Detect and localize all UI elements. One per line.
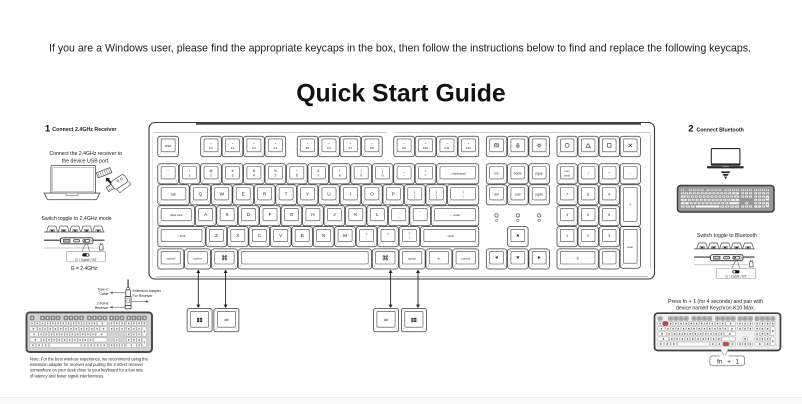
svg-text:Switch toggle to 2.4GHz mode: Switch toggle to 2.4GHz mode bbox=[42, 216, 112, 222]
svg-text:enter: enter bbox=[627, 245, 633, 249]
svg-text:Press fn + 1 (for 4 seconds) a: Press fn + 1 (for 4 seconds) and pair wi… bbox=[668, 299, 763, 305]
svg-text:fn: fn bbox=[438, 256, 441, 260]
svg-text:5: 5 bbox=[587, 213, 589, 217]
svg-text:8: 8 bbox=[339, 173, 341, 177]
svg-text:option: option bbox=[194, 256, 203, 260]
svg-text:extension adapter for receiver: extension adapter for receiver and putti… bbox=[30, 362, 144, 367]
svg-text:2: 2 bbox=[210, 173, 212, 177]
svg-text:F4: F4 bbox=[274, 146, 278, 150]
svg-text:control: control bbox=[461, 256, 470, 260]
svg-text:3: 3 bbox=[232, 173, 234, 177]
svg-text:F11: F11 bbox=[445, 146, 450, 150]
svg-text:,: , bbox=[366, 236, 367, 240]
svg-text:clear: clear bbox=[564, 173, 570, 177]
svg-text:1: 1 bbox=[189, 173, 191, 177]
svg-text:=: = bbox=[425, 173, 427, 177]
svg-text:pgdn: pgdn bbox=[536, 192, 543, 196]
svg-text:]: ] bbox=[436, 194, 437, 198]
svg-text:↑ shift: ↑ shift bbox=[446, 234, 454, 238]
svg-text:F9: F9 bbox=[402, 146, 406, 150]
svg-text:M: M bbox=[343, 233, 347, 238]
svg-text:4: 4 bbox=[566, 213, 568, 217]
svg-text:1: 1 bbox=[45, 124, 51, 135]
svg-text:0: 0 bbox=[382, 173, 384, 177]
svg-text:B: B bbox=[301, 233, 304, 238]
svg-text:G = 2.4GHz: G = 2.4GHz bbox=[71, 266, 98, 272]
svg-text:.: . bbox=[609, 256, 610, 260]
svg-text:control: control bbox=[166, 256, 175, 260]
svg-text:0: 0 bbox=[577, 256, 579, 260]
svg-text:/: / bbox=[409, 236, 410, 240]
svg-text:N: N bbox=[322, 233, 325, 238]
svg-text:device named Keychron K10 Max.: device named Keychron K10 Max. bbox=[676, 306, 755, 312]
svg-text:P: P bbox=[392, 191, 395, 196]
svg-text:F3: F3 bbox=[252, 146, 256, 150]
svg-text:F12: F12 bbox=[466, 146, 472, 150]
svg-text:F2: F2 bbox=[231, 146, 235, 150]
svg-text:/: / bbox=[588, 171, 589, 175]
svg-text:Z: Z bbox=[215, 233, 218, 238]
svg-text:Switch toggle to Bluetooth: Switch toggle to Bluetooth bbox=[697, 233, 757, 239]
svg-text:8: 8 bbox=[587, 192, 589, 196]
svg-text:For Receiver: For Receiver bbox=[133, 294, 154, 298]
svg-text:option: option bbox=[408, 256, 417, 260]
svg-text:the device USB port.: the device USB port. bbox=[62, 158, 110, 164]
svg-text:end: end bbox=[515, 192, 521, 196]
svg-text:ins: ins bbox=[494, 171, 498, 175]
svg-text:4: 4 bbox=[253, 173, 255, 177]
svg-text:-: - bbox=[404, 173, 405, 177]
svg-text:L: L bbox=[376, 212, 379, 217]
svg-text:somewhere on your desk close t: somewhere on your desk close to your key… bbox=[30, 368, 144, 373]
svg-text:Quick Start Guide: Quick Start Guide bbox=[296, 81, 505, 108]
svg-text:.: . bbox=[388, 236, 389, 240]
svg-text:+: + bbox=[629, 203, 631, 207]
svg-text:2: 2 bbox=[688, 124, 693, 135]
svg-text:1: 1 bbox=[735, 358, 739, 365]
svg-text:T: T bbox=[285, 191, 288, 196]
svg-text:[: [ bbox=[414, 194, 415, 198]
svg-text:+: + bbox=[727, 358, 731, 365]
svg-text:F: F bbox=[269, 212, 272, 217]
svg-text:Connect 2.4GHz Receiver: Connect 2.4GHz Receiver bbox=[52, 127, 116, 133]
svg-text:J: J bbox=[333, 212, 335, 217]
svg-text:`: ` bbox=[168, 173, 169, 177]
svg-text:Note: For the best wireless ex: Note: For the best wireless experience, … bbox=[30, 356, 149, 361]
svg-text:7: 7 bbox=[317, 173, 319, 177]
svg-text:Q: Q bbox=[198, 191, 202, 196]
svg-text:2.4GHz: 2.4GHz bbox=[97, 301, 109, 305]
svg-text:F8: F8 bbox=[370, 146, 374, 150]
svg-text:9: 9 bbox=[608, 192, 610, 196]
svg-text:↑ shift: ↑ shift bbox=[178, 234, 186, 238]
svg-text:F10: F10 bbox=[423, 146, 429, 150]
svg-text:G / Cable / BT: G / Cable / BT bbox=[75, 258, 96, 262]
svg-text:Extension Adapter: Extension Adapter bbox=[133, 289, 162, 293]
svg-text:fn: fn bbox=[717, 358, 723, 365]
svg-text:F6: F6 bbox=[327, 146, 331, 150]
svg-text:Connect Bluetooth: Connect Bluetooth bbox=[697, 127, 744, 133]
svg-text:6: 6 bbox=[608, 213, 610, 217]
svg-text:Connect the 2.4GHz receiver to: Connect the 2.4GHz receiver to bbox=[49, 151, 122, 157]
svg-text:6: 6 bbox=[296, 173, 298, 177]
svg-text:Cable: Cable bbox=[99, 292, 108, 296]
svg-text:5: 5 bbox=[274, 173, 276, 177]
svg-text:7: 7 bbox=[566, 192, 568, 196]
svg-text:3: 3 bbox=[608, 234, 610, 238]
svg-text:R: R bbox=[263, 191, 267, 196]
svg-text:tab: tab bbox=[171, 192, 176, 196]
svg-text:←backspace: ←backspace bbox=[450, 171, 467, 175]
svg-text:If you are a Windows user, ple: If you are a Windows user, please find t… bbox=[49, 43, 751, 55]
svg-text:Type-C: Type-C bbox=[97, 287, 109, 291]
svg-text:;: ; bbox=[398, 215, 399, 219]
svg-text:O: O bbox=[370, 191, 374, 196]
svg-text:of latency and fewer signal in: of latency and fewer signal interference… bbox=[30, 373, 104, 378]
svg-text:home: home bbox=[514, 171, 522, 175]
svg-text:del: del bbox=[494, 192, 499, 196]
svg-text:9: 9 bbox=[360, 173, 362, 177]
svg-text:H: H bbox=[311, 212, 314, 217]
svg-text:pgup: pgup bbox=[536, 171, 543, 175]
svg-text:E: E bbox=[242, 191, 245, 196]
svg-text:F5: F5 bbox=[306, 146, 310, 150]
svg-text:esc: esc bbox=[165, 143, 171, 148]
svg-text:\: \ bbox=[463, 194, 464, 198]
svg-text:2: 2 bbox=[587, 234, 589, 238]
svg-text:num: num bbox=[565, 170, 570, 173]
svg-text:Receiver: Receiver bbox=[95, 306, 110, 310]
svg-text:caps lock: caps lock bbox=[170, 213, 183, 217]
svg-text:F1: F1 bbox=[209, 146, 213, 150]
svg-text:F7: F7 bbox=[349, 146, 353, 150]
svg-text:-: - bbox=[630, 171, 631, 175]
svg-text:← enter: ← enter bbox=[450, 213, 461, 217]
svg-text:1: 1 bbox=[566, 234, 568, 238]
svg-text:G: G bbox=[290, 212, 294, 217]
svg-text:S: S bbox=[226, 212, 229, 217]
svg-text:G / Cable / BT: G / Cable / BT bbox=[725, 275, 746, 279]
svg-text:W: W bbox=[220, 191, 225, 196]
svg-text:I: I bbox=[350, 191, 351, 196]
